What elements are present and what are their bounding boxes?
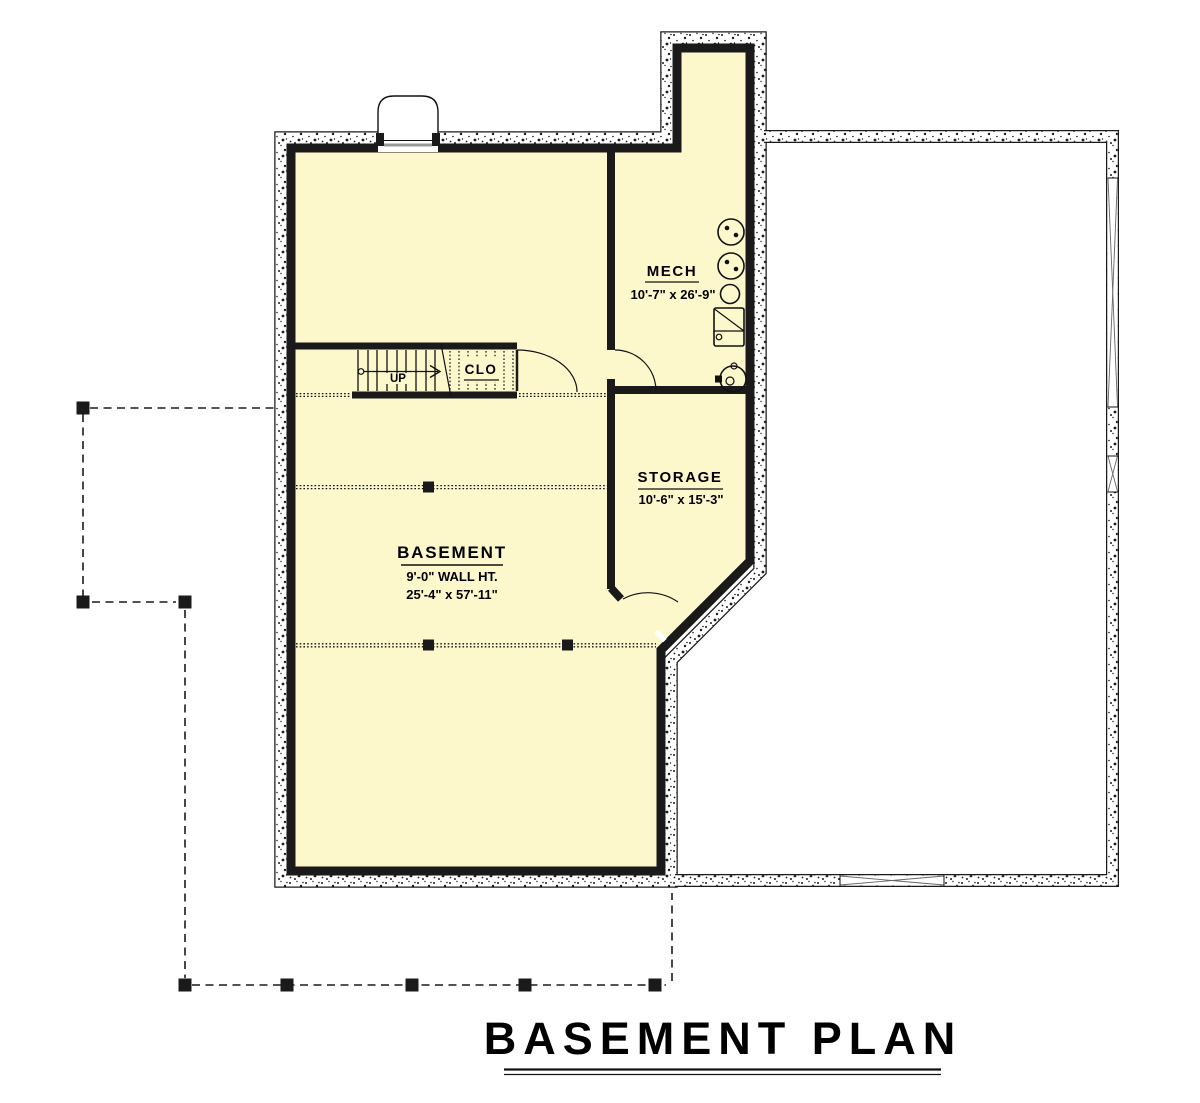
floor-plan-page: UP CLO	[0, 0, 1200, 1103]
storage-room-dims: 10'-6" x 15'-3"	[638, 492, 723, 507]
x-brace-section-right-upper	[1108, 178, 1119, 407]
support-post	[423, 482, 434, 493]
stairs-up-label: UP	[390, 373, 406, 385]
deck-post	[179, 596, 192, 609]
basement-wall-height: 9'-0" WALL HT.	[406, 569, 497, 584]
deck-post	[77, 596, 90, 609]
deck-post	[519, 979, 532, 992]
basement-room-label: BASEMENT	[397, 543, 507, 562]
floor-plan-drawing: UP CLO	[0, 0, 1200, 1103]
deck-post	[179, 979, 192, 992]
deck-post	[649, 979, 662, 992]
basement-room-dims: 25'-4" x 57'-11"	[406, 587, 498, 602]
support-post	[423, 640, 434, 651]
x-brace-section-bottom	[840, 875, 944, 886]
deck-post	[281, 979, 294, 992]
window-jamb-left	[376, 133, 384, 146]
deck-post	[77, 402, 90, 415]
x-brace-section-right-lower	[1108, 456, 1119, 492]
mech-room-label: MECH	[647, 263, 698, 280]
closet-label: CLO	[465, 362, 498, 377]
window-jamb-right	[432, 133, 440, 146]
storage-room-label: STORAGE	[637, 469, 722, 486]
mech-room-dims: 10'-7" x 26'-9"	[630, 287, 715, 302]
sheet-title: BASEMENT PLAN	[484, 1013, 963, 1064]
support-post	[562, 640, 573, 651]
deck-post	[406, 979, 419, 992]
